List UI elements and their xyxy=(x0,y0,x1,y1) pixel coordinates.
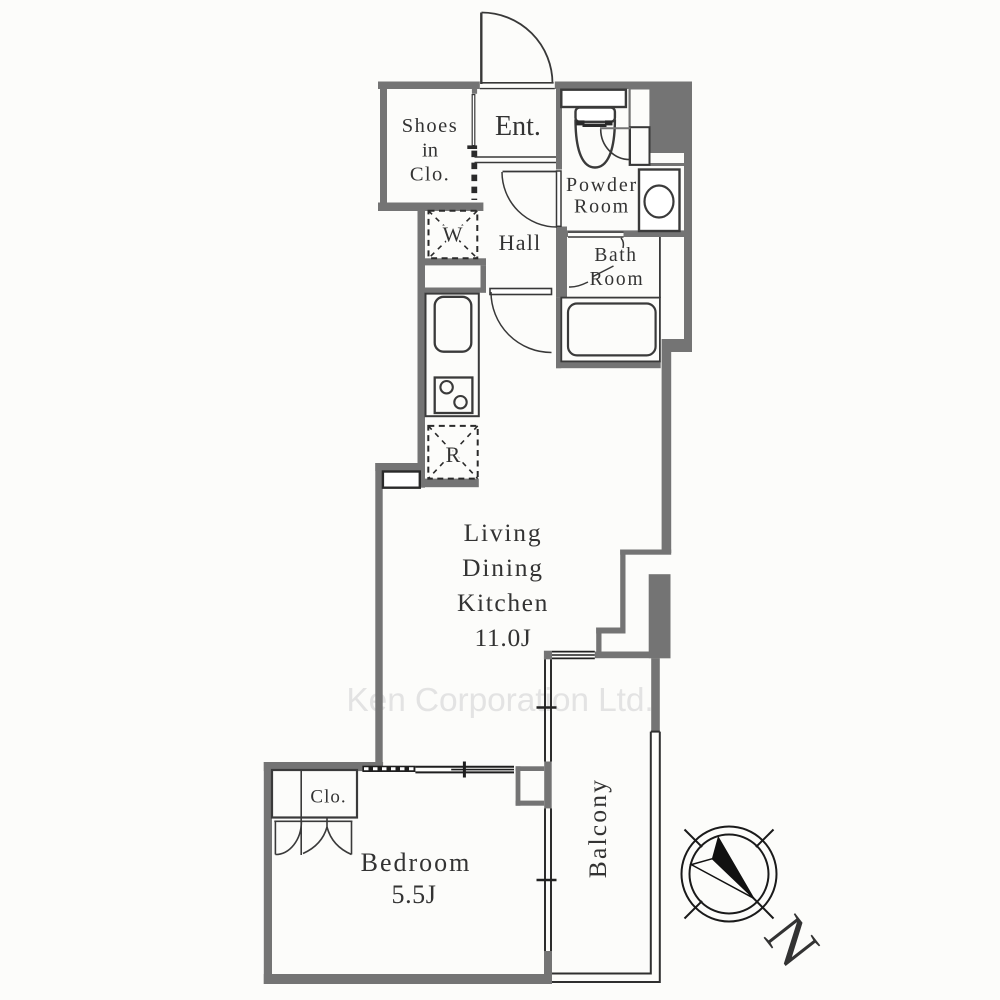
svg-text:Ken Corporation Ltd.: Ken Corporation Ltd. xyxy=(346,682,653,719)
svg-text:in: in xyxy=(422,140,438,162)
svg-text:Room: Room xyxy=(574,196,630,218)
svg-text:Bedroom: Bedroom xyxy=(361,848,472,877)
svg-text:Bath: Bath xyxy=(594,245,637,266)
svg-text:Living: Living xyxy=(464,518,543,547)
svg-text:Powder: Powder xyxy=(566,174,638,196)
svg-text:Dining: Dining xyxy=(462,553,544,582)
svg-text:5.5J: 5.5J xyxy=(391,880,436,909)
svg-text:W: W xyxy=(443,223,463,247)
svg-text:Shoes: Shoes xyxy=(402,115,458,137)
svg-text:11.0J: 11.0J xyxy=(474,623,531,652)
svg-text:Balcony: Balcony xyxy=(583,778,612,878)
svg-text:Kitchen: Kitchen xyxy=(457,588,549,617)
svg-text:Ent.: Ent. xyxy=(495,111,541,142)
svg-text:Clo.: Clo. xyxy=(410,164,450,186)
svg-text:Room: Room xyxy=(590,269,645,290)
svg-text:Hall: Hall xyxy=(499,230,542,255)
svg-text:R: R xyxy=(446,442,461,467)
svg-text:Clo.: Clo. xyxy=(310,787,346,808)
